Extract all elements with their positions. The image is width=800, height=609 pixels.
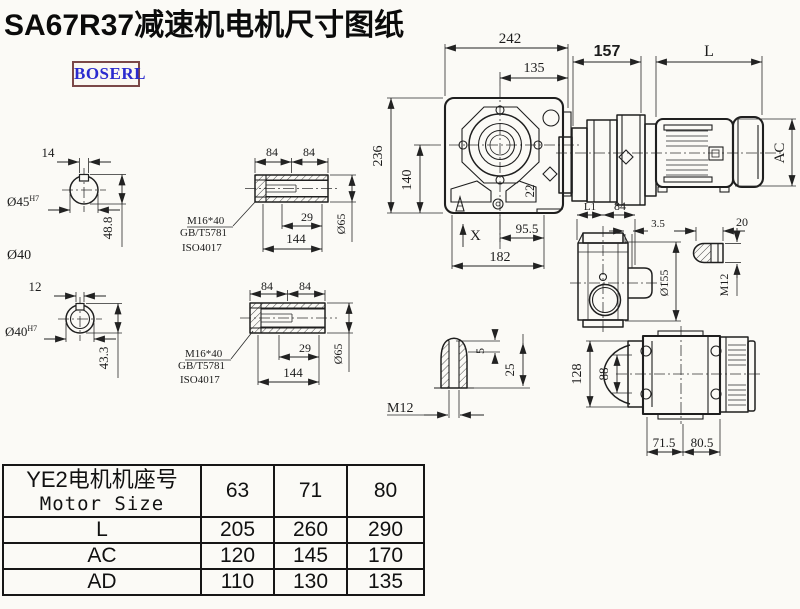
dim-len2: 80.5 (691, 435, 714, 450)
dim-center-height: 140 (400, 170, 415, 191)
dim-len2: 84 (614, 199, 626, 213)
dim-keyway-width: 12 (29, 279, 42, 294)
row-label: L (3, 517, 201, 543)
dim-seg2: 84 (303, 145, 315, 159)
dim-width: 242 (499, 31, 522, 47)
page-title: SA67R37减速机电机尺寸图纸 (4, 0, 404, 44)
dim-foot-half: 95.5 (516, 221, 539, 236)
table-size-col: 80 (347, 465, 424, 517)
dim-offset: 3.5 (651, 218, 665, 230)
dim-foot-width: 182 (490, 250, 511, 265)
input-flange (617, 115, 645, 205)
keyway-slot (76, 304, 84, 311)
motor-side-view: 157 L AC (556, 43, 796, 205)
dim-len1: 71.5 (653, 435, 676, 450)
bolt-spec: M16*40 (185, 348, 223, 360)
dim-length: 25 (502, 364, 517, 377)
table-row: AD 110 130 135 (3, 569, 424, 595)
output-side-view: L1 84 3.5 Ø155 (570, 199, 681, 334)
bolt-spec: M16*40 (187, 215, 225, 227)
housing-outline (445, 98, 563, 213)
bolt-diamond (543, 167, 557, 181)
table-header-motor-size: YE2电机机座号 Motor Size (3, 465, 201, 517)
flange-fins (728, 345, 746, 405)
standard-1: GB/T5781 (178, 360, 225, 372)
motor-flange (720, 337, 748, 412)
table-row: AC 120 145 170 (3, 543, 424, 569)
dim-center-to-face: 135 (524, 61, 545, 76)
terminal-box (709, 147, 723, 160)
standard-1: GB/T5781 (180, 227, 227, 239)
dim-height: 236 (371, 146, 386, 167)
shaft-section-40-view: 12 Ø40H7 43.3 (5, 279, 122, 378)
foot-clamp (456, 197, 464, 211)
dim-motor-length: L (704, 43, 714, 60)
standard-2: ISO4017 (182, 242, 222, 254)
dim-len1: L1 (584, 201, 596, 213)
dim-flange-dia: Ø155 (657, 270, 671, 297)
dim-thread: M12 (717, 274, 731, 297)
dim-key-len: 29 (299, 341, 311, 355)
table-cell: 170 (347, 543, 424, 569)
dim-bore-label: Ø45H7 (7, 194, 39, 209)
gear-housing (587, 120, 617, 202)
hollow-shaft-bottom-view: 84 84 29 144 Ø65 M16*40 GB/T5781 ISO4017 (178, 279, 353, 386)
key-section-view: 20 M12 (674, 215, 748, 296)
rib-cutout (451, 181, 491, 202)
table-cell: 135 (347, 569, 424, 595)
dim-motor-dia: AC (772, 143, 788, 164)
dim-dia: Ø65 (331, 344, 345, 365)
keyway-slot (80, 175, 89, 182)
dim-bolt-size: 22 (522, 185, 537, 198)
dim-seg1: 84 (266, 145, 278, 159)
dim-key-len: 29 (301, 210, 313, 224)
dim-depth: 5 (473, 348, 487, 354)
dim-gear-length: 157 (594, 43, 621, 60)
table-size-col: 63 (201, 465, 274, 517)
table-header-en: Motor Size (4, 493, 200, 515)
table-size-col: 71 (274, 465, 347, 517)
gearbox-front-view: 22 242 135 236 140 95.5 182 X (371, 31, 580, 269)
motor-size-table: YE2电机机座号 Motor Size 63 71 80 L 205 260 2… (2, 464, 425, 596)
table-cell: 110 (201, 569, 274, 595)
dim-height: 128 (570, 364, 585, 385)
brand-logo: BOSERL (72, 61, 140, 87)
corner-boss (543, 110, 559, 126)
standard-2: ISO4017 (180, 374, 220, 386)
dim-inner-height: 88 (596, 368, 611, 381)
bolt-diamond (619, 150, 633, 164)
dim-seg1: 84 (261, 279, 273, 293)
adapter-ring (645, 124, 656, 196)
dim-seg2: 84 (299, 279, 311, 293)
dim-keyway-height: 48.8 (100, 217, 115, 240)
dim-bore-label: Ø40H7 (5, 324, 37, 339)
dim-keyway-height: 43.3 (96, 347, 111, 370)
table-row: L 205 260 290 (3, 517, 424, 543)
dim-dia: Ø65 (334, 214, 348, 235)
table-cell: 205 (201, 517, 274, 543)
outer-dia-label: Ø40 (7, 248, 31, 263)
output-bore (590, 285, 621, 316)
flange-cap (748, 341, 755, 411)
table-cell: 130 (274, 569, 347, 595)
dim-key-width: 20 (736, 215, 748, 229)
dim-total-len: 144 (286, 231, 306, 246)
row-label: AD (3, 569, 201, 595)
dim-keyway-width: 14 (42, 145, 56, 160)
row-label: AC (3, 543, 201, 569)
drain-hole (493, 199, 503, 209)
table-cell: 260 (274, 517, 347, 543)
shaft-section-45-view: 14 Ø45H7 48.8 Ø40 (7, 145, 126, 263)
shaft-end-view: 5 25 M12 (387, 330, 530, 418)
dim-total-len: 144 (283, 365, 303, 380)
table-header-cn: YE2电机机座号 (4, 467, 200, 493)
table-cell: 120 (201, 543, 274, 569)
table-cell: 290 (347, 517, 424, 543)
table-cell: 145 (274, 543, 347, 569)
gearbox-bottom-view: 128 88 71.5 80.5 (570, 326, 762, 456)
hollow-shaft-top-view: 84 84 29 144 Ø65 M16*40 GB/T5781 ISO4017 (180, 145, 356, 254)
dim-thread: M12 (387, 401, 413, 416)
drawing-sheet: 14 Ø45H7 48.8 Ø40 12 Ø40H7 43.3 (0, 0, 800, 609)
marker-x: X (470, 228, 481, 244)
